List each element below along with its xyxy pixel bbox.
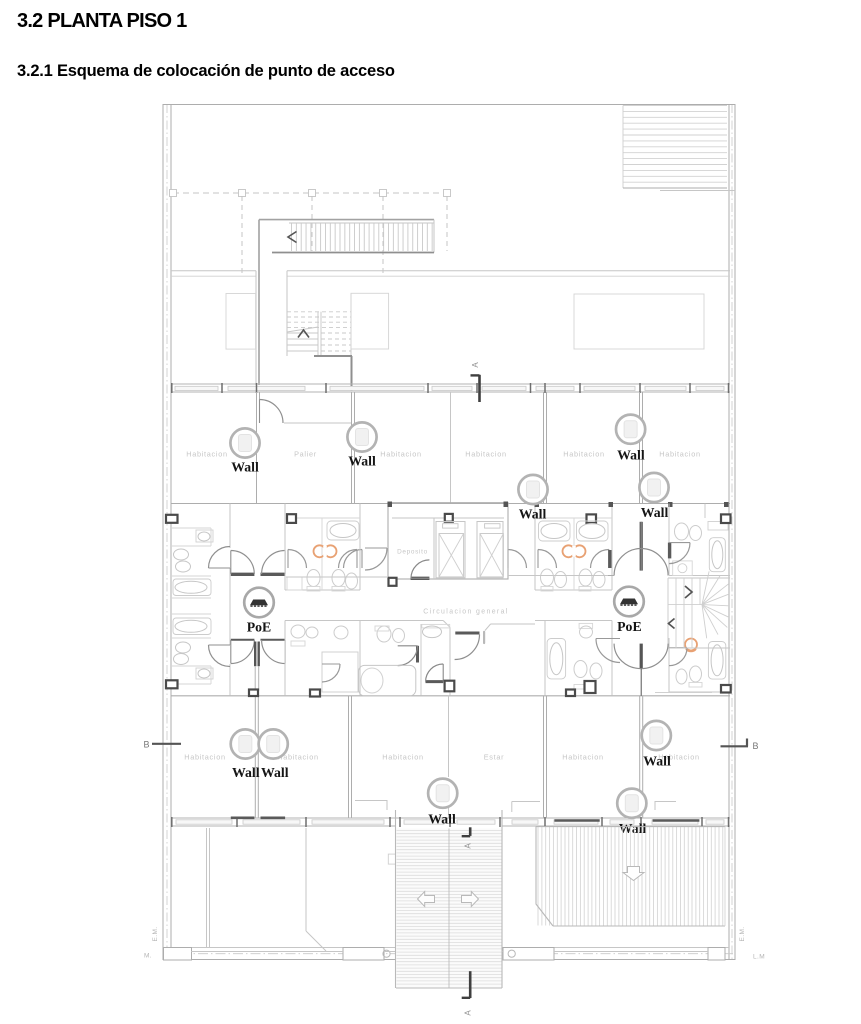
svg-text:Habitacion: Habitacion (659, 450, 700, 459)
svg-text:A: A (464, 1010, 473, 1016)
svg-text:Wall: Wall (519, 507, 547, 522)
svg-text:Wall: Wall (643, 754, 671, 769)
svg-text:Habitacion: Habitacion (186, 450, 227, 459)
svg-text:Habitacion: Habitacion (184, 753, 225, 762)
svg-text:M.: M. (144, 953, 152, 960)
svg-text:Habitacion: Habitacion (562, 753, 603, 762)
svg-text:Wall: Wall (261, 765, 289, 780)
svg-text:PoE: PoE (617, 619, 642, 634)
svg-text:Habitacion: Habitacion (563, 450, 604, 459)
svg-text:Wall: Wall (231, 460, 259, 475)
svg-text:A: A (471, 362, 480, 368)
svg-text:E.M.: E.M. (152, 927, 159, 942)
svg-text:B: B (143, 740, 149, 750)
svg-text:L.M: L.M (753, 954, 765, 961)
svg-text:Habitacion: Habitacion (380, 450, 421, 459)
svg-text:Wall: Wall (348, 454, 376, 469)
svg-text:Palier: Palier (294, 450, 317, 459)
svg-text:Wall: Wall (617, 448, 645, 463)
svg-text:PoE: PoE (247, 620, 272, 635)
svg-text:Wall: Wall (232, 765, 260, 780)
svg-text:Circulacion general: Circulacion general (423, 609, 509, 616)
svg-text:Habitacion: Habitacion (465, 450, 506, 459)
svg-text:Deposito: Deposito (397, 549, 428, 556)
svg-text:Estar: Estar (484, 753, 505, 762)
svg-text:E.M.: E.M. (739, 927, 746, 942)
svg-text:A: A (464, 843, 473, 849)
svg-text:Habitacion: Habitacion (382, 753, 423, 762)
svg-text:B: B (752, 741, 758, 751)
svg-text:Wall: Wall (428, 812, 456, 827)
svg-text:Wall: Wall (641, 505, 669, 520)
